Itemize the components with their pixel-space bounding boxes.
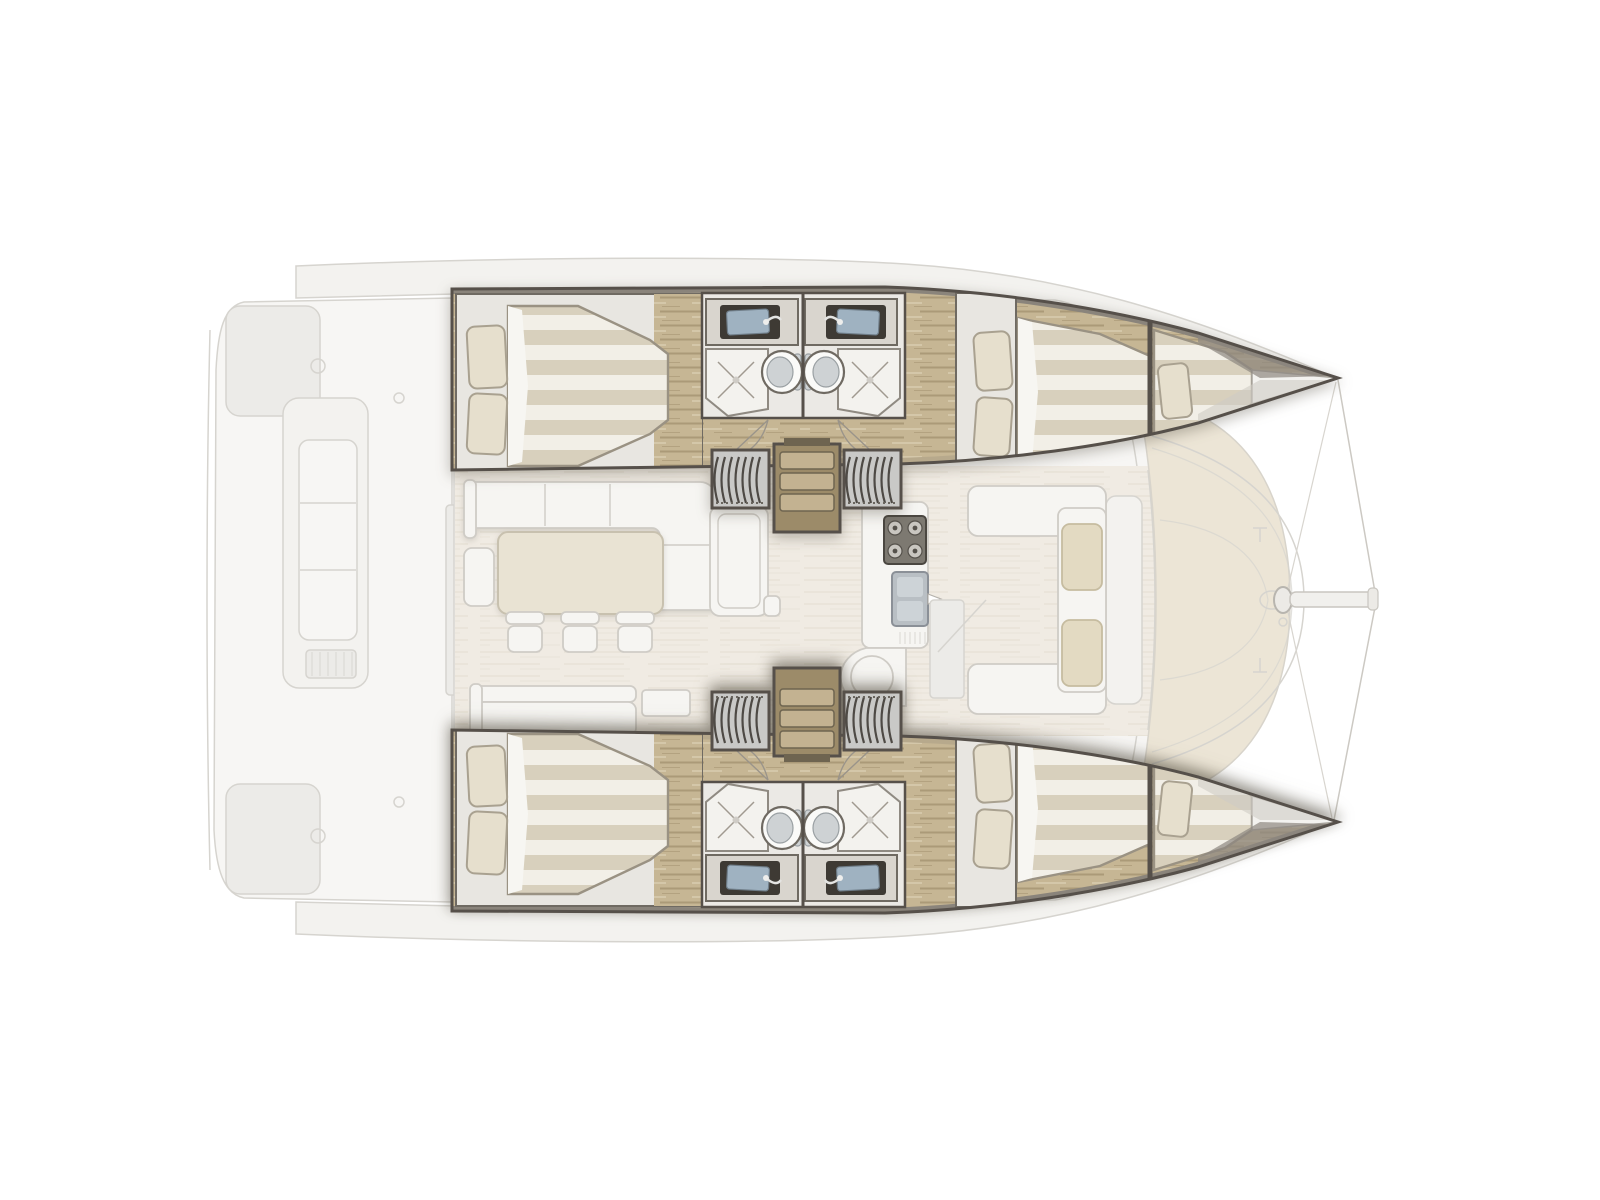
dining-stools	[506, 612, 654, 652]
trampoline-panel	[1138, 398, 1290, 802]
cockpit-bench	[283, 398, 368, 688]
pillow	[466, 325, 507, 389]
transom-edge	[207, 330, 210, 870]
forward-door	[930, 600, 964, 698]
galley-cooktop	[884, 516, 926, 564]
stern-step-pad-starboard	[226, 784, 320, 894]
cockpit-cushion	[1062, 524, 1102, 590]
bowsprit	[1290, 592, 1374, 607]
aft-cabin	[456, 294, 702, 470]
aft-cockpit	[207, 298, 460, 902]
saloon-side-bench	[464, 548, 494, 606]
cockpit-table-vent	[306, 650, 356, 678]
companionway-steps	[774, 438, 840, 532]
shower-tray	[706, 349, 768, 416]
pillow	[1157, 363, 1192, 420]
bowsprit-tip	[1368, 588, 1378, 610]
pillow	[973, 331, 1013, 391]
bathroom-sink	[720, 305, 781, 339]
pillow	[466, 393, 507, 455]
dining-table	[498, 532, 663, 614]
floorplan-svg: Sailing catamaran interior layout plan, …	[0, 0, 1600, 1200]
bathroom-sink	[825, 305, 886, 339]
toilet	[762, 351, 802, 393]
toilet	[804, 351, 844, 393]
catamaran-floorplan-canvas: Sailing catamaran interior layout plan, …	[0, 0, 1600, 1200]
shower-tray	[838, 349, 900, 416]
cockpit-cushion	[1062, 620, 1102, 686]
pillow	[973, 397, 1013, 457]
sliding-hatch	[844, 450, 901, 508]
foredeck	[1138, 380, 1378, 820]
sliding-hatch	[712, 450, 769, 508]
